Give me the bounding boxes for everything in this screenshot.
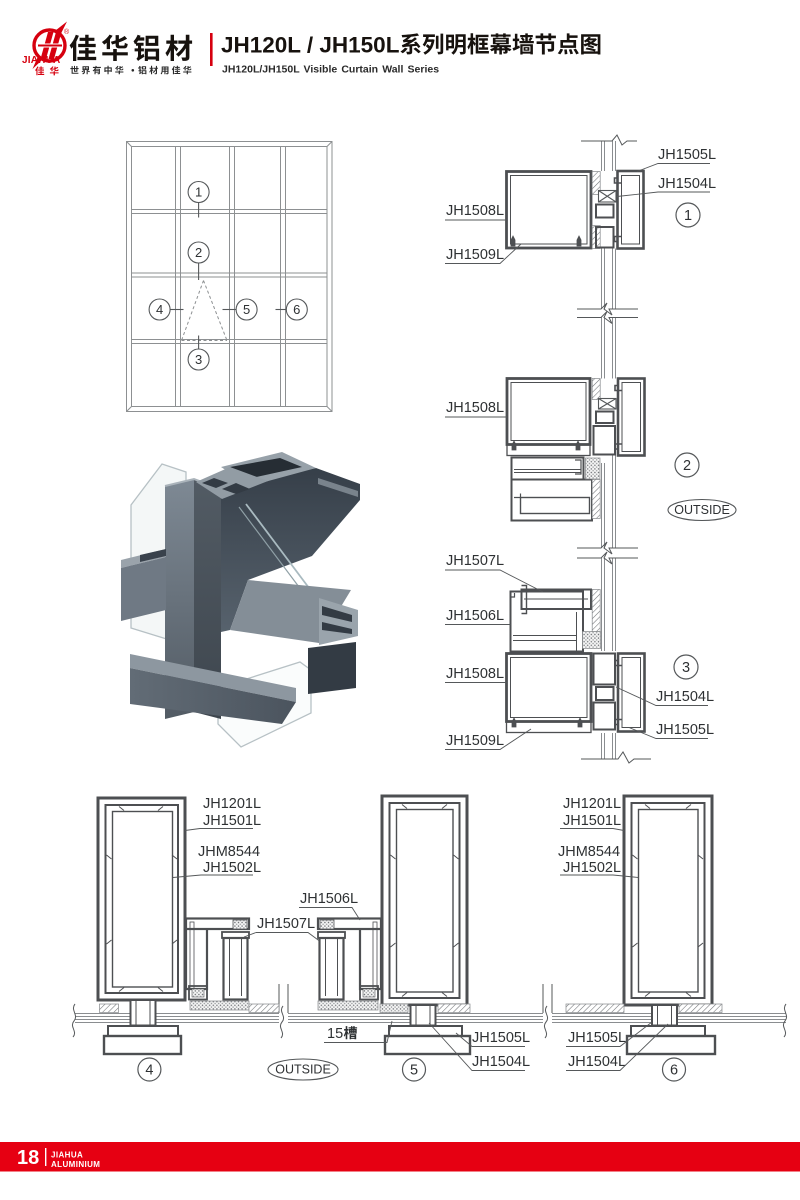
svg-text:18: 18 xyxy=(17,1147,39,1169)
svg-text:JH1507L: JH1507L xyxy=(446,553,504,569)
svg-text:JH1508L: JH1508L xyxy=(446,400,504,416)
svg-text:JH1505L: JH1505L xyxy=(568,1030,626,1046)
svg-text:2: 2 xyxy=(195,245,202,260)
svg-text:JHM8544: JHM8544 xyxy=(558,844,620,860)
svg-text:5: 5 xyxy=(410,1062,418,1078)
svg-text:JIAHUA: JIAHUA xyxy=(22,55,60,66)
svg-text:JH1502L: JH1502L xyxy=(563,860,621,876)
svg-text:JH1501L: JH1501L xyxy=(563,813,621,829)
svg-text:4: 4 xyxy=(156,302,163,317)
svg-text:JH1506L: JH1506L xyxy=(300,891,358,907)
svg-text:JH1505L: JH1505L xyxy=(658,147,716,163)
svg-text:JH1201L: JH1201L xyxy=(203,796,261,812)
svg-text:6: 6 xyxy=(670,1062,678,1078)
svg-text:JH120L / JH150L: JH120L / JH150L xyxy=(221,33,400,58)
svg-text:JH1509L: JH1509L xyxy=(446,733,504,749)
svg-text:JH1504L: JH1504L xyxy=(658,176,716,192)
svg-text:5: 5 xyxy=(243,302,250,317)
svg-text:JH1508L: JH1508L xyxy=(446,666,504,682)
svg-text:JH1504L: JH1504L xyxy=(656,689,714,705)
svg-text:1: 1 xyxy=(684,208,692,224)
svg-text:JH1508L: JH1508L xyxy=(446,203,504,219)
svg-text:OUTSIDE: OUTSIDE xyxy=(275,1063,331,1077)
svg-text:6: 6 xyxy=(293,302,300,317)
svg-text:JH1505L: JH1505L xyxy=(656,722,714,738)
svg-text:JIAHUA: JIAHUA xyxy=(51,1151,83,1160)
svg-text:JHM8544: JHM8544 xyxy=(198,844,260,860)
svg-text:15: 15 xyxy=(327,1026,343,1042)
svg-text:JH1201L: JH1201L xyxy=(563,796,621,812)
svg-text:3: 3 xyxy=(195,352,202,367)
svg-text:3: 3 xyxy=(682,660,690,676)
svg-text:OUTSIDE: OUTSIDE xyxy=(674,503,730,517)
svg-text:JH1504L: JH1504L xyxy=(472,1054,530,1070)
svg-text:JH1502L: JH1502L xyxy=(203,860,261,876)
svg-text:JH120L/JH150L Visible Curtain: JH120L/JH150L Visible Curtain Wall Serie… xyxy=(222,64,439,76)
svg-text:ALUMINIUM: ALUMINIUM xyxy=(51,1160,100,1169)
svg-text:JH1507L: JH1507L xyxy=(257,916,315,932)
svg-text:JH1501L: JH1501L xyxy=(203,813,261,829)
svg-text:®: ® xyxy=(64,28,70,36)
svg-text:JH1509L: JH1509L xyxy=(446,247,504,263)
svg-text:4: 4 xyxy=(145,1062,153,1078)
svg-text:JH1505L: JH1505L xyxy=(472,1030,530,1046)
svg-text:2: 2 xyxy=(683,458,691,474)
svg-text:JH1506L: JH1506L xyxy=(446,608,504,624)
svg-text:JH1504L: JH1504L xyxy=(568,1054,626,1070)
svg-text:1: 1 xyxy=(195,185,202,200)
